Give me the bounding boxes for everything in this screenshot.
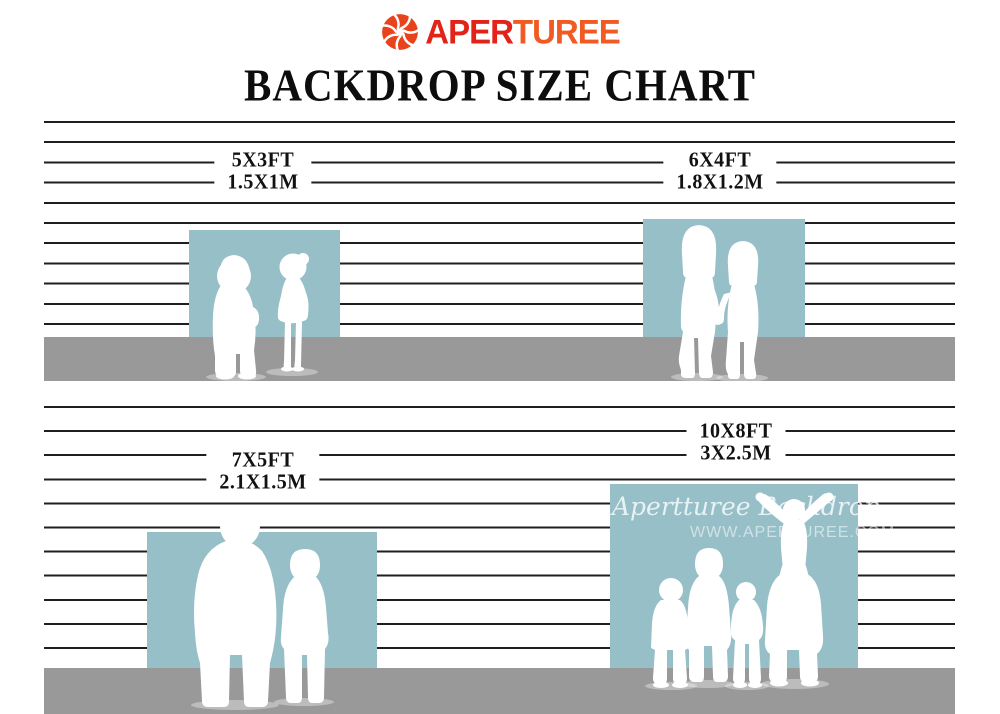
brand-header: APERTUREE	[0, 12, 1000, 52]
wall-panel-top	[44, 121, 955, 327]
page-title: BACKDROP SIZE CHART	[0, 58, 1000, 112]
size-ft-label: 5X3FT	[227, 148, 298, 172]
size-label-6x4: 6X4FT 1.8X1.2M	[663, 148, 776, 194]
size-m-label: 3X2.5M	[700, 441, 773, 465]
brand-text-red: APER	[425, 12, 513, 51]
size-label-5x3: 5X3FT 1.5X1M	[214, 148, 311, 194]
brand-text-orange: TUREE	[513, 12, 620, 51]
size-m-label: 2.1X1.5M	[219, 470, 306, 494]
size-label-10x8: 10X8FT 3X2.5M	[687, 419, 786, 465]
size-ft-label: 7X5FT	[219, 448, 306, 472]
size-m-label: 1.5X1M	[227, 170, 298, 194]
adult-and-child-silhouette	[140, 505, 390, 710]
brand-wordmark: APERTUREE	[425, 12, 620, 52]
size-label-7x5: 7X5FT 2.1X1.5M	[206, 448, 319, 494]
backdrop-size-chart: APERTUREE BACKDROP SIZE CHART Apertturee…	[0, 0, 1000, 714]
two-toddlers-silhouette	[192, 250, 342, 382]
family-of-five-silhouette	[603, 478, 868, 693]
size-m-label: 1.8X1.2M	[676, 170, 763, 194]
size-ft-label: 6X4FT	[676, 148, 763, 172]
aperture-icon	[380, 12, 420, 52]
two-girls-holding-hands-silhouette	[666, 220, 778, 382]
size-ft-label: 10X8FT	[700, 419, 773, 443]
floor-strip-top	[44, 337, 955, 381]
